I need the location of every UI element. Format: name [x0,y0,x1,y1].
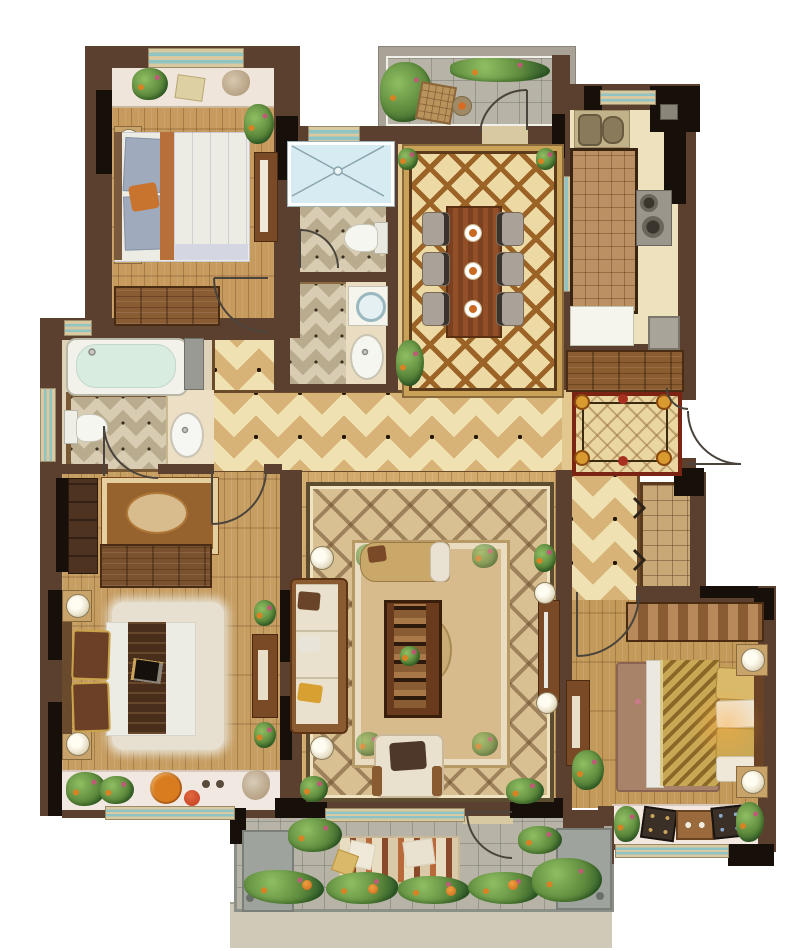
wall [286,272,390,282]
foyer-rug-inner-border [582,402,668,462]
foyer-rug-corner [656,394,672,410]
cooktop-burner [640,194,658,212]
toilet-bowl [76,414,108,442]
foyer-rug-floret [618,394,628,404]
window [600,90,656,105]
chaise-arm [430,542,450,582]
terrace-table [415,81,457,125]
dresser-top-panel [258,650,268,700]
bedroom2-wardrobe [626,602,764,642]
master-rug-medallion [126,492,188,534]
desk-top [260,160,268,232]
chaise-pillow [367,545,387,563]
sill-box [174,74,205,102]
pumpkin [368,884,378,894]
place-setting [464,224,482,242]
floor-lamp [310,736,334,760]
hallway-floor [212,390,562,474]
wall-column [48,702,62,758]
sill-dish [216,780,224,788]
accent-pillow [128,182,160,212]
armchair-arm [372,766,382,796]
kitchen-island [570,148,638,314]
wall [62,464,108,474]
washer-drum [356,292,386,322]
window [148,48,244,68]
wall [158,464,214,474]
wall [286,384,388,392]
sill-box [676,810,714,840]
wardrobe [114,286,220,326]
wall-column [96,90,112,174]
foyer-rug-corner [574,450,590,466]
terrace-planting [398,876,470,904]
kitchen-sink-basin [578,114,602,146]
corridor-floor [568,472,640,608]
laundry-basin [350,334,384,380]
wall-column [48,590,62,660]
bed-tray [131,658,164,684]
floor-lamp [534,582,556,604]
kitchen-corner-unit [660,104,678,120]
tv-screen [544,612,548,688]
pumpkin [302,880,312,890]
sill-fruit [184,790,200,806]
sideboard [566,350,684,392]
dining-chair [496,292,524,326]
master-bed-headboard [62,622,72,734]
kitchen-appliance [648,316,680,350]
terrace-planting [450,58,550,82]
floor-lamp [310,546,334,570]
bathroom-basin [170,412,204,458]
table-lamp [741,770,765,794]
master-wardrobe-left [68,478,98,574]
floor-plan-canvas [0,0,800,951]
entry-door [688,411,741,464]
table-lamp [66,732,90,756]
cooktop-burner [642,216,664,238]
window [105,806,235,820]
bathtub-water [76,344,176,388]
sill-dish [202,780,210,788]
dining-chair [422,252,450,286]
terrace-planting [326,872,398,904]
window [325,808,465,822]
refrigerator [570,306,634,346]
dining-chair [496,252,524,286]
armchair-pillow [389,741,427,771]
sofa-pillow [297,591,320,611]
terrace-top-door-threshold [480,126,530,144]
foyer-rug-corner [574,394,590,410]
bed-foot-fold [174,244,248,260]
dining-chair [422,212,450,246]
terrace-planting [468,872,540,904]
mat-cushion [402,838,435,868]
wall-column [728,844,774,866]
wall [398,126,482,144]
fruit-plate [150,772,182,804]
lamp-glow [690,688,764,762]
bath-cabinet [184,338,204,390]
shower-tray [288,142,394,206]
sofa-pillow [297,635,321,653]
floor-lamp [536,692,558,714]
wall-column [48,758,62,816]
tv-cabinet [538,600,560,702]
wall-column [56,478,68,572]
armchair-arm [432,766,442,796]
utility-knob [596,892,604,900]
place-setting [464,262,482,280]
bed-pillow [71,681,111,732]
window [40,388,56,462]
sill-tray [640,806,678,842]
wall-column [700,586,758,598]
dresser-top-panel [572,696,580,748]
master-dresser-top [100,544,212,588]
pumpkin [508,880,518,890]
wall [274,332,290,392]
terrace-stool [452,96,472,116]
bed-headboard [114,132,122,260]
place-setting [464,300,482,318]
table-lamp [741,648,765,672]
dining-chair [422,292,450,326]
foyer-rug-floret [618,456,628,466]
bed-runner [160,132,174,260]
bed-pillow [71,629,111,680]
pumpkin [446,886,456,896]
toilet-bowl [344,224,378,252]
window [64,320,92,336]
foyer-rug-corner [656,450,672,466]
sofa-pillow [297,682,323,703]
window [615,844,729,858]
table-lamp [66,594,90,618]
kitchen-sink-basin [602,116,624,144]
dining-chair [496,212,524,246]
bed-blanket [174,132,248,260]
